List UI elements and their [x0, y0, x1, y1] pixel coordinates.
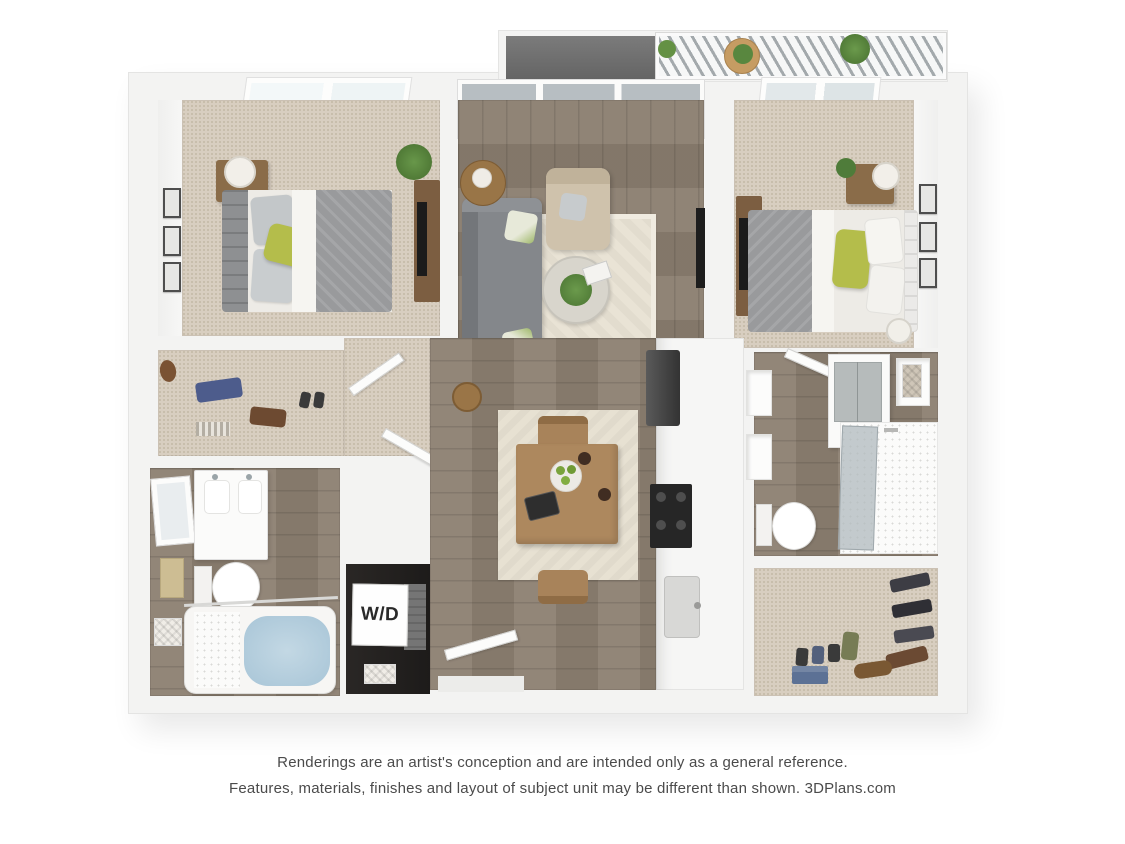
bathroom2-wall-niche: [746, 434, 772, 480]
closet1-bag-icon: [249, 406, 287, 428]
balcony-railing: [656, 33, 946, 79]
bedroom2-lamp-icon: [872, 162, 900, 190]
bathroom1-bath-mat: [154, 618, 182, 646]
bedroom1-wall-art-icon: [163, 226, 181, 256]
bathroom1-mirror: [151, 476, 195, 545]
balcony-table-plant-icon: [733, 44, 753, 64]
dining-chair-back: [538, 416, 588, 424]
bedroom2-plant-icon: [836, 158, 856, 178]
closet2-shoe-icon: [795, 648, 808, 667]
bedroom1-tv-icon: [417, 202, 427, 276]
bathroom1-tub-tile-wall: [194, 612, 240, 688]
bathroom1-towel: [160, 558, 184, 598]
disclaimer-line-2: Features, materials, finishes and layout…: [0, 776, 1125, 802]
bedroom2-wall-art-icon: [919, 184, 937, 214]
closet2-shoe-icon: [828, 644, 840, 662]
closet2-boot-icon: [841, 631, 860, 661]
bathroom2-wall-niche: [746, 370, 772, 416]
bedroom1-duvet: [316, 190, 392, 312]
closet2-folded-jeans: [792, 666, 828, 684]
shower-head-icon: [884, 428, 898, 432]
bathroom1-faucet-icon: [212, 474, 218, 480]
bedroom1-blanket-fold: [292, 190, 316, 312]
balcony-plant-small-icon: [658, 40, 676, 58]
living-room-armchair-back: [546, 168, 610, 184]
cooktop-burner-icon: [656, 520, 666, 530]
cup-icon: [598, 488, 611, 501]
bedroom2-bed-headboard: [904, 210, 918, 332]
bedroom1-left-wall-face: [158, 100, 182, 336]
dining-chair-back: [538, 596, 588, 604]
bedroom2-duvet: [748, 210, 812, 332]
kitchen-faucet-icon: [694, 602, 701, 609]
cup-icon: [578, 452, 591, 465]
living-room-table-lamp-icon: [472, 168, 492, 188]
bedroom2-wall-art-icon: [919, 258, 937, 288]
bathroom1-tub-water: [244, 616, 330, 686]
bathroom2-cabinet-divider: [857, 362, 858, 422]
bedroom2-floor-vase-icon: [886, 318, 912, 344]
hallway-stool: [452, 382, 482, 412]
bedroom1-plant-icon: [396, 144, 432, 180]
disclaimer-line-1: Renderings are an artist's conception an…: [0, 750, 1125, 776]
washer-dryer-box: W/D: [351, 584, 408, 647]
cooktop-burner-icon: [656, 492, 666, 502]
closet1-striped-mat: [196, 422, 230, 436]
fruit-green-icon: [556, 466, 565, 475]
bedroom2-pillow: [864, 216, 905, 266]
fruit-green-icon: [561, 476, 570, 485]
cooktop-burner-icon: [676, 520, 686, 530]
living-room-armchair-pillow: [558, 192, 587, 221]
bedroom2-blanket-fold: [812, 210, 834, 332]
balcony-plant-icon: [840, 34, 870, 64]
living-room-tv-icon: [696, 208, 705, 288]
bedroom1-wall-art-icon: [163, 188, 181, 218]
cooktop-burner-icon: [676, 492, 686, 502]
closet2-shoe-icon: [812, 646, 825, 664]
balcony-roof-panel: [506, 36, 656, 80]
washer-dryer-mat: [364, 664, 396, 684]
bedroom1-lamp-icon: [224, 156, 256, 188]
bathroom2-toilet-tank: [756, 504, 772, 546]
bathroom1-sink-basin: [238, 480, 262, 514]
bathroom2-toilet-bowl: [772, 502, 816, 550]
bathroom1-sink-basin: [204, 480, 230, 514]
bedroom2-pillow: [865, 264, 907, 316]
bedroom1-bed-headboard: [222, 190, 248, 312]
fruit-green-icon: [567, 465, 576, 474]
bathroom2-shower-glass-door: [838, 425, 878, 550]
bedroom2-wall-art-icon: [919, 222, 937, 252]
floor-plan-canvas: W/D Renderings: [0, 0, 1125, 844]
bathroom2-towel-icon: [902, 364, 922, 398]
disclaimer-text: Renderings are an artist's conception an…: [0, 750, 1125, 802]
bedroom1-wall-art-icon: [163, 262, 181, 292]
living-room-sofa-pillow: [504, 210, 539, 245]
bathroom1-faucet-icon: [246, 474, 252, 480]
entry-threshold: [438, 676, 524, 692]
bathroom2-vanity-cabinet: [834, 362, 882, 422]
kitchen-fridge: [646, 350, 680, 426]
